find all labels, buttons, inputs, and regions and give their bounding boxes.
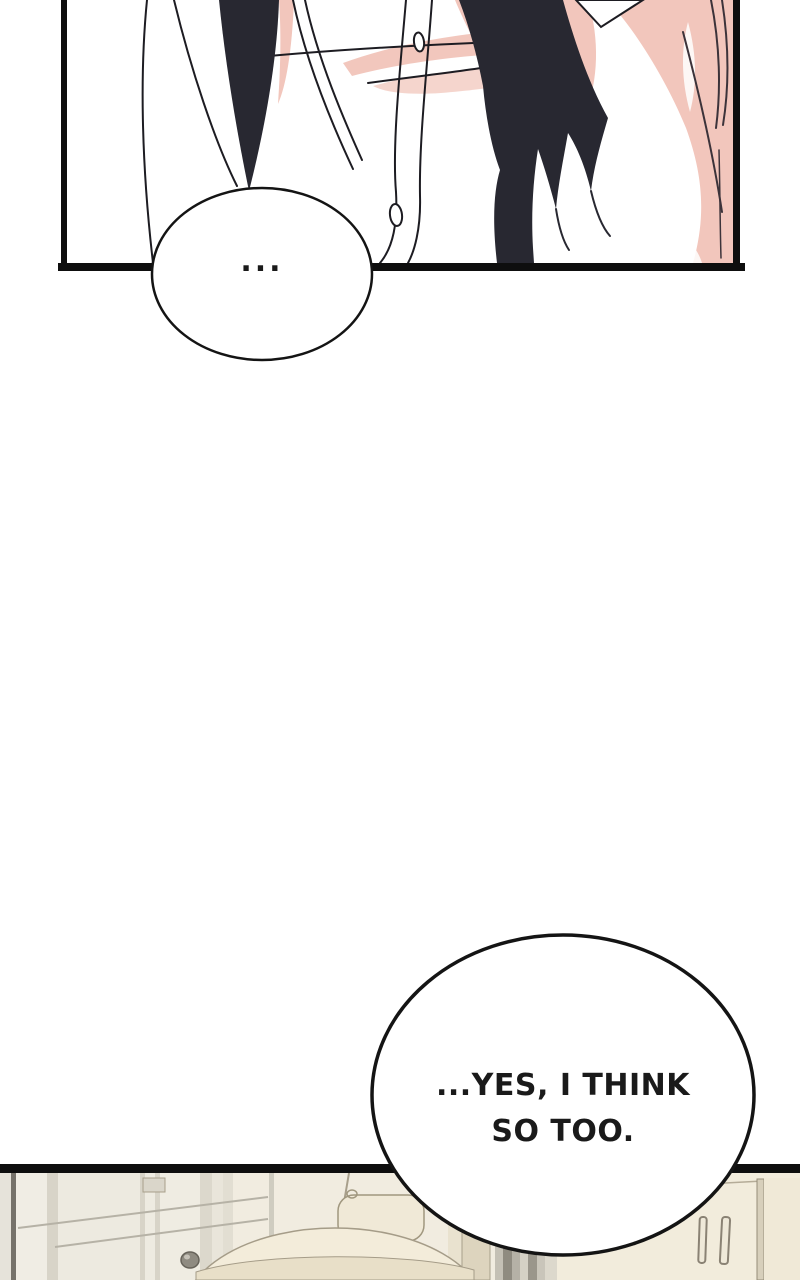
comic-page: ... ...YES, I THINK SO TOO. (0, 0, 800, 1280)
cabinet-corner (757, 1179, 764, 1280)
panel-top-art (67, 0, 733, 263)
door-knob (181, 1252, 199, 1268)
speech-reply-line-1: ...YES, I THINK (383, 1063, 743, 1109)
speech-text-ellipsis: ... (192, 238, 332, 286)
cabinet-handle-left (698, 1217, 707, 1263)
cabinet-handle-right (720, 1217, 730, 1264)
door-knob-highlight (184, 1255, 190, 1260)
speech-text-reply: ...YES, I THINK SO TOO. (383, 1063, 743, 1155)
speech-reply-line-2: SO TOO. (383, 1109, 743, 1155)
window-object (143, 1178, 165, 1192)
cabinet-right-door (764, 1178, 800, 1280)
